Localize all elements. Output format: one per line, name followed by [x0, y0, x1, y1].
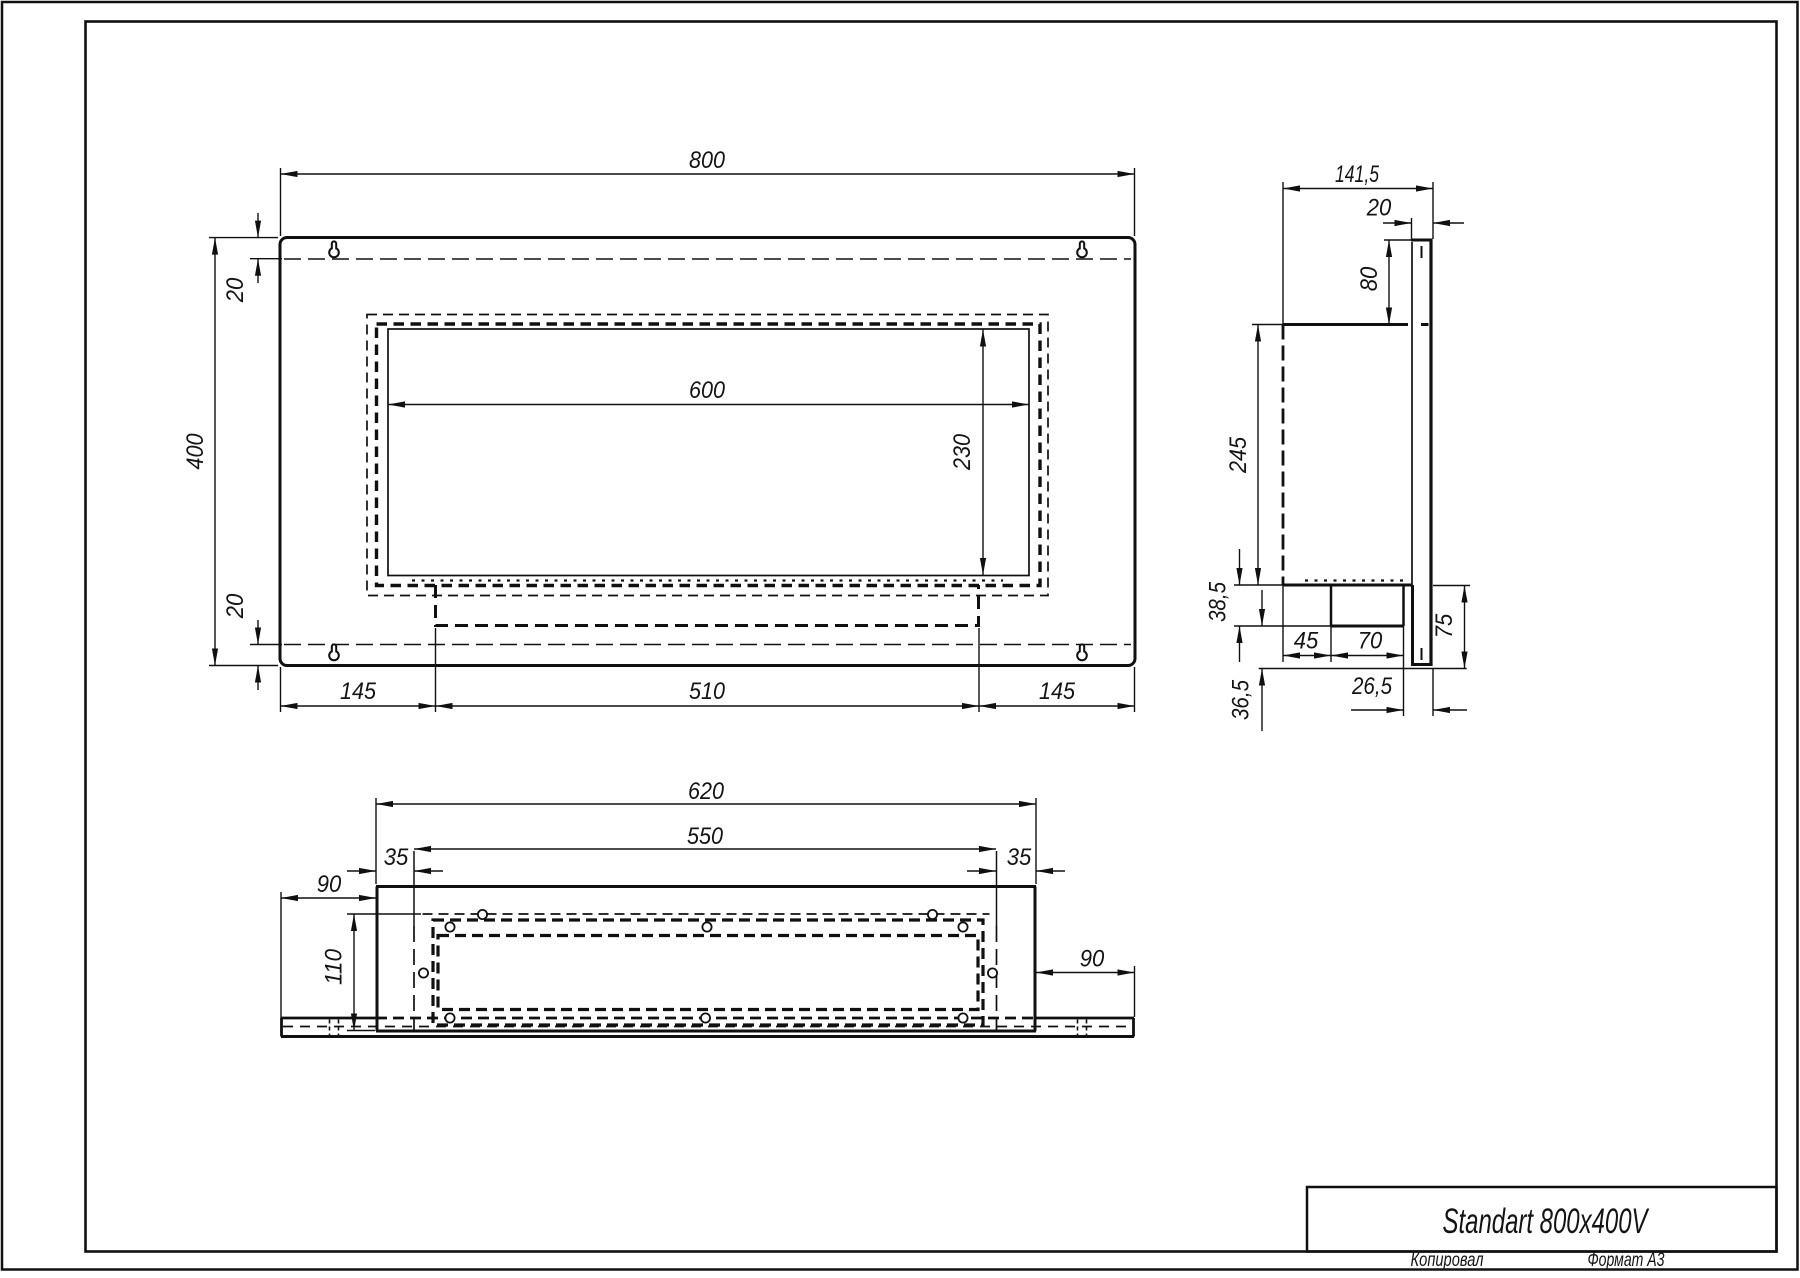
svg-text:20: 20 [222, 593, 249, 619]
svg-text:145: 145 [1039, 678, 1076, 705]
svg-text:45: 45 [1294, 628, 1319, 655]
svg-text:38,5: 38,5 [1205, 581, 1232, 622]
svg-text:550: 550 [687, 823, 724, 850]
svg-text:75: 75 [1431, 613, 1458, 638]
svg-text:90: 90 [317, 871, 342, 898]
svg-text:26,5: 26,5 [1351, 673, 1392, 700]
svg-text:510: 510 [689, 678, 726, 705]
svg-text:Копировал: Копировал [1411, 1250, 1484, 1271]
svg-text:90: 90 [1080, 946, 1105, 973]
svg-text:600: 600 [689, 377, 726, 404]
svg-text:141,5: 141,5 [1335, 161, 1379, 188]
svg-text:20: 20 [1366, 195, 1392, 222]
svg-text:20: 20 [222, 277, 249, 303]
svg-text:230: 230 [949, 433, 976, 470]
svg-text:36,5: 36,5 [1228, 679, 1255, 720]
svg-text:800: 800 [689, 147, 726, 174]
svg-text:245: 245 [1225, 436, 1252, 473]
svg-text:110: 110 [321, 948, 348, 985]
svg-text:70: 70 [1358, 628, 1383, 655]
svg-text:Формат А3: Формат А3 [1588, 1250, 1665, 1271]
svg-text:35: 35 [384, 844, 409, 871]
svg-text:400: 400 [182, 433, 209, 470]
svg-text:145: 145 [340, 678, 377, 705]
svg-text:Standart 800x400V: Standart 800x400V [1443, 1202, 1650, 1241]
svg-text:80: 80 [1356, 266, 1383, 291]
svg-text:620: 620 [688, 778, 725, 805]
svg-text:35: 35 [1007, 844, 1032, 871]
